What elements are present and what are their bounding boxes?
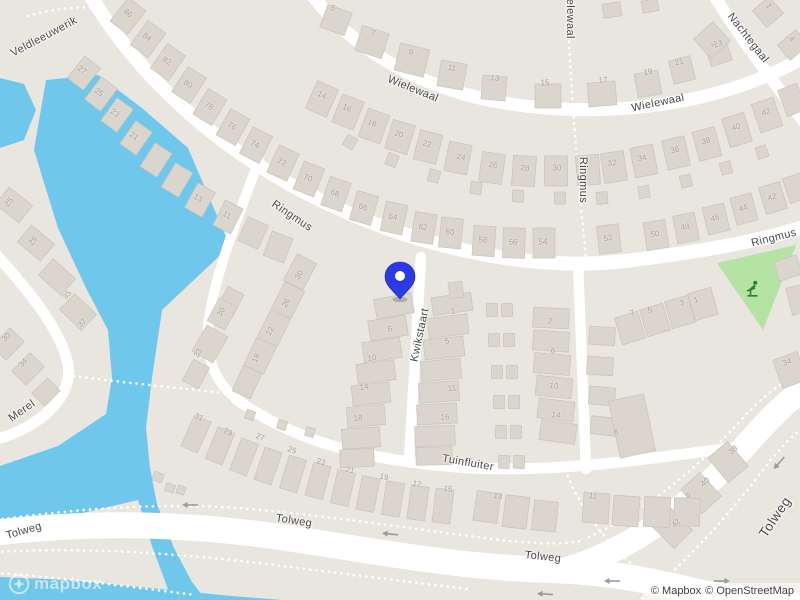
park: [717, 245, 796, 330]
map-canvas[interactable]: VeldleeuwerikWielewaalWielewaalWielewaal…: [0, 0, 800, 600]
oneway-arrow-icon: [537, 590, 553, 597]
mapbox-logo[interactable]: mapbox: [8, 573, 102, 595]
oneway-arrow-icon: [771, 455, 786, 471]
attribution-mapbox-link[interactable]: © Mapbox: [651, 585, 701, 597]
mapbox-logo-text: mapbox: [34, 574, 102, 594]
map-attribution: © Mapbox© OpenStreetMap: [643, 583, 800, 600]
oneway-arrow-icon: [382, 530, 399, 538]
attribution-osm-link[interactable]: © OpenStreetMap: [705, 585, 794, 597]
mapbox-logo-icon: [8, 573, 30, 595]
